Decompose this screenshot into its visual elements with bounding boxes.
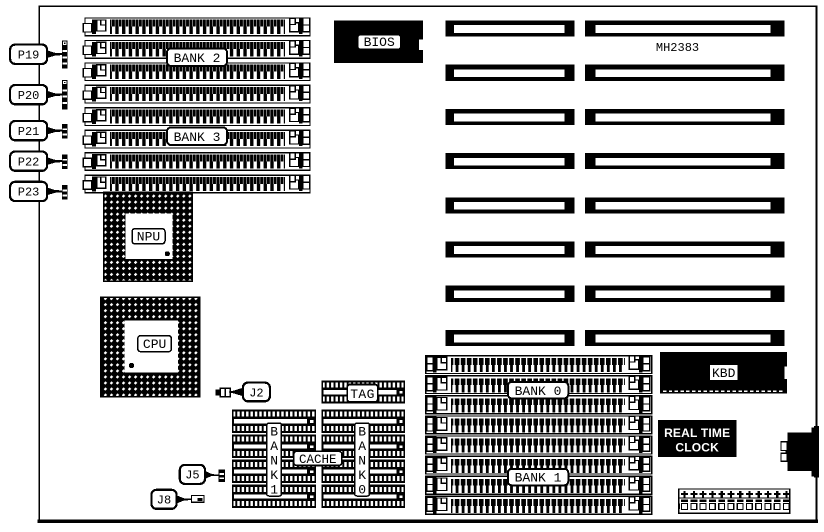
svg-text:P20: P20 (18, 89, 40, 103)
svg-text:P22: P22 (18, 156, 40, 170)
svg-text:BANK 2: BANK 2 (174, 51, 221, 66)
svg-text:1: 1 (270, 483, 278, 498)
svg-text:B: B (270, 424, 278, 439)
svg-text:BANK 0: BANK 0 (515, 384, 562, 399)
svg-text:K: K (358, 468, 366, 483)
svg-text:TAG: TAG (350, 387, 375, 402)
svg-text:J2: J2 (249, 386, 263, 400)
svg-text:CLOCK: CLOCK (675, 441, 719, 455)
svg-text:B: B (358, 424, 366, 439)
svg-text:BIOS: BIOS (364, 35, 395, 50)
svg-text:J8: J8 (157, 494, 171, 508)
svg-text:N: N (270, 454, 278, 469)
svg-text:REAL TIME: REAL TIME (664, 426, 730, 440)
svg-text:K: K (270, 468, 278, 483)
svg-text:P19: P19 (18, 49, 40, 63)
svg-text:N: N (358, 454, 366, 469)
svg-text:0: 0 (358, 483, 366, 498)
svg-text:A: A (358, 439, 366, 454)
svg-text:NPU: NPU (137, 230, 160, 245)
svg-text:MH2383: MH2383 (656, 41, 699, 55)
svg-text:KBD: KBD (712, 366, 736, 381)
svg-text:J5: J5 (185, 469, 199, 483)
svg-text:CACHE: CACHE (299, 453, 337, 467)
svg-text:BANK 1: BANK 1 (515, 471, 562, 486)
svg-text:CPU: CPU (143, 337, 166, 352)
svg-text:A: A (270, 439, 278, 454)
svg-text:P23: P23 (18, 186, 40, 200)
svg-text:P21: P21 (18, 125, 40, 139)
svg-text:BANK 3: BANK 3 (174, 130, 221, 145)
